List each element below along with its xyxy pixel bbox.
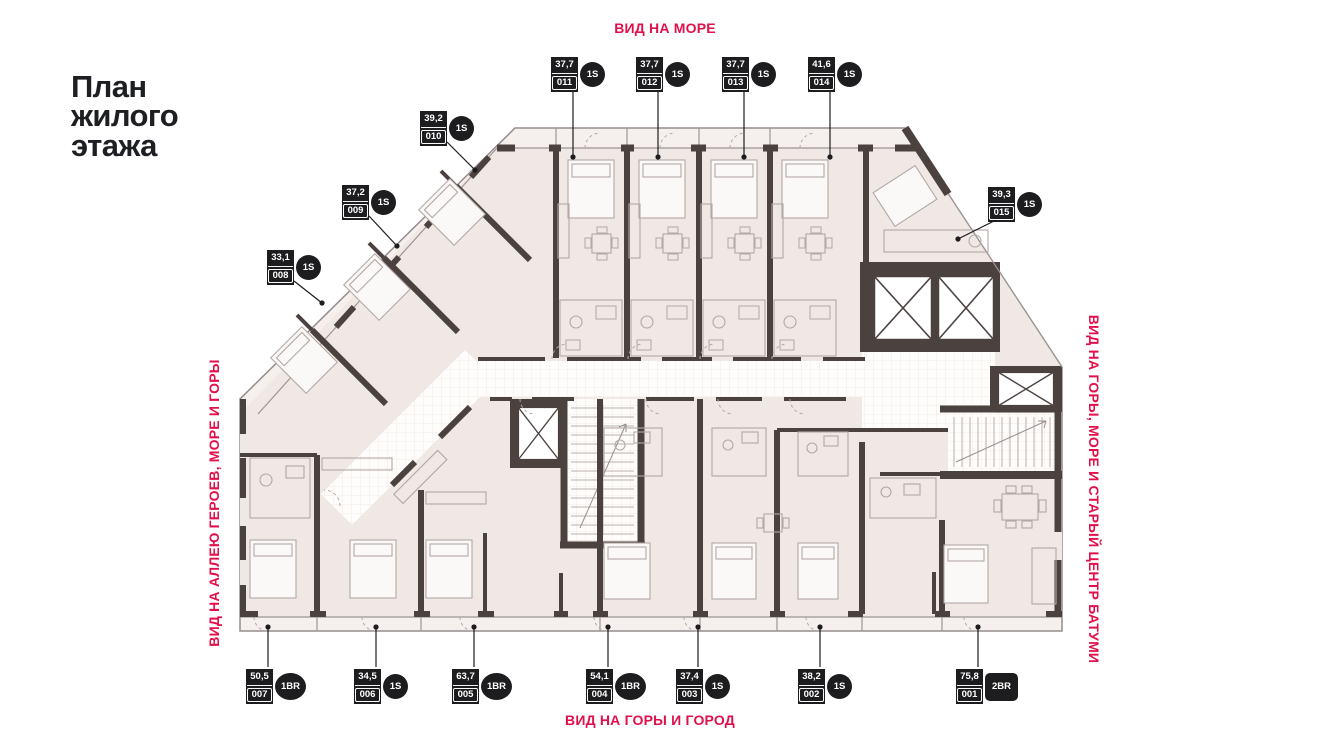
- unit-number: 005: [453, 688, 478, 703]
- unit-label-014: 41,60141S: [808, 57, 862, 92]
- unit-type-badge: 1S: [751, 62, 776, 87]
- unit-area-number-badge: 50,5007: [246, 669, 273, 704]
- unit-leader-dot: [265, 624, 270, 629]
- unit-number: 001: [957, 688, 982, 703]
- unit-type-badge: 1S: [705, 674, 730, 699]
- unit-number: 011: [552, 76, 577, 91]
- unit-area: 39,3: [989, 189, 1014, 204]
- unit-leader-dot: [570, 154, 575, 159]
- unit-label-015: 39,30151S: [988, 187, 1042, 222]
- unit-area: 37,7: [552, 59, 577, 74]
- floor-plan: [0, 0, 1333, 750]
- unit-number: 004: [587, 688, 612, 703]
- unit-leader-dot: [655, 154, 660, 159]
- unit-area: 39,2: [421, 113, 446, 128]
- unit-number: 014: [809, 76, 834, 91]
- unit-number: 007: [247, 688, 272, 703]
- unit-leader-dot: [319, 300, 324, 305]
- unit-label-003: 37,40031S: [676, 669, 730, 704]
- unit-area: 54,1: [587, 671, 612, 686]
- unit-area: 38,2: [799, 671, 824, 686]
- view-label-mountains-city: ВИД НА ГОРЫ И ГОРОД: [565, 712, 735, 728]
- unit-area: 37,7: [637, 59, 662, 74]
- unit-leader-dot: [472, 167, 477, 172]
- unit-area-number-badge: 34,5006: [354, 669, 381, 704]
- unit-area: 50,5: [247, 671, 272, 686]
- unit-area: 33,1: [268, 252, 293, 267]
- unit-area: 37,7: [723, 59, 748, 74]
- unit-type-badge: 1S: [449, 116, 474, 141]
- title-line-1: План: [71, 72, 178, 101]
- unit-label-004: 54,10041BR: [586, 669, 646, 704]
- unit-type-badge: 1BR: [481, 673, 512, 700]
- unit-leader-dot: [817, 624, 822, 629]
- unit-number: 010: [421, 130, 446, 145]
- page-title: План жилого этажа: [71, 72, 178, 160]
- unit-area-number-badge: 37,7012: [636, 57, 663, 92]
- unit-label-005: 63,70051BR: [452, 669, 512, 704]
- unit-area-number-badge: 63,7005: [452, 669, 479, 704]
- floor-plan-page: План жилого этажа ВИД НА МОРЕ ВИД НА ГОР…: [0, 0, 1333, 750]
- unit-type-badge: 1S: [383, 674, 408, 699]
- unit-leader-dot: [394, 243, 399, 248]
- view-label-sea: ВИД НА МОРЕ: [614, 20, 716, 36]
- unit-area-number-badge: 38,2002: [798, 669, 825, 704]
- unit-leader-dot: [955, 236, 960, 241]
- unit-number: 008: [268, 269, 293, 284]
- unit-area-number-badge: 39,3015: [988, 187, 1015, 222]
- unit-area: 75,8: [957, 671, 982, 686]
- view-label-heroes-alley: ВИД НА АЛЛЕЮ ГЕРОЕВ, МОРЕ И ГОРЫ: [206, 359, 222, 646]
- unit-leader-dot: [827, 154, 832, 159]
- unit-number: 013: [723, 76, 748, 91]
- unit-area-number-badge: 54,1004: [586, 669, 613, 704]
- unit-label-010: 39,20101S: [420, 111, 474, 146]
- unit-area-number-badge: 37,7011: [551, 57, 578, 92]
- unit-type-badge: 1S: [665, 62, 690, 87]
- unit-leader-dot: [741, 154, 746, 159]
- unit-label-007: 50,50071BR: [246, 669, 306, 704]
- unit-area-number-badge: 39,2010: [420, 111, 447, 146]
- unit-number: 012: [637, 76, 662, 91]
- unit-label-006: 34,50061S: [354, 669, 408, 704]
- unit-label-013: 37,70131S: [722, 57, 776, 92]
- unit-leader-dot: [471, 624, 476, 629]
- unit-number: 003: [677, 688, 702, 703]
- unit-label-002: 38,20021S: [798, 669, 852, 704]
- unit-area-number-badge: 41,6014: [808, 57, 835, 92]
- unit-area-number-badge: 37,7013: [722, 57, 749, 92]
- unit-leader-dot: [695, 624, 700, 629]
- unit-type-badge: 1S: [837, 62, 862, 87]
- unit-area-number-badge: 37,2009: [342, 185, 369, 220]
- unit-area-number-badge: 33,1008: [267, 250, 294, 285]
- unit-label-009: 37,20091S: [342, 185, 396, 220]
- view-label-batumi-center: ВИД НА ГОРЫ, МОРЕ И СТАРЫЙ ЦЕНТР БАТУМИ: [1086, 315, 1102, 663]
- unit-type-badge: 2BR: [985, 673, 1018, 701]
- unit-area-number-badge: 75,8001: [956, 669, 983, 704]
- unit-type-badge: 1S: [371, 190, 396, 215]
- unit-type-badge: 1BR: [615, 673, 646, 700]
- unit-area-number-badge: 37,4003: [676, 669, 703, 704]
- unit-type-badge: 1S: [296, 255, 321, 280]
- unit-area: 37,2: [343, 187, 368, 202]
- unit-area: 34,5: [355, 671, 380, 686]
- unit-area: 41,6: [809, 59, 834, 74]
- unit-type-badge: 1BR: [275, 673, 306, 700]
- title-line-3: этажа: [71, 131, 178, 160]
- unit-leader-line: [447, 142, 475, 170]
- unit-area: 63,7: [453, 671, 478, 686]
- unit-type-badge: 1S: [1017, 192, 1042, 217]
- unit-leader-dot: [975, 624, 980, 629]
- unit-leader-dot: [605, 624, 610, 629]
- unit-number: 009: [343, 204, 368, 219]
- unit-number: 002: [799, 688, 824, 703]
- title-line-2: жилого: [71, 101, 178, 130]
- unit-label-001: 75,80012BR: [956, 669, 1018, 704]
- unit-label-011: 37,70111S: [551, 57, 605, 92]
- unit-number: 006: [355, 688, 380, 703]
- unit-type-badge: 1S: [580, 62, 605, 87]
- unit-type-badge: 1S: [827, 674, 852, 699]
- unit-leader-dot: [373, 624, 378, 629]
- unit-label-008: 33,10081S: [267, 250, 321, 285]
- unit-number: 015: [989, 206, 1014, 221]
- unit-area: 37,4: [677, 671, 702, 686]
- unit-leader-line: [369, 216, 397, 246]
- unit-label-012: 37,70121S: [636, 57, 690, 92]
